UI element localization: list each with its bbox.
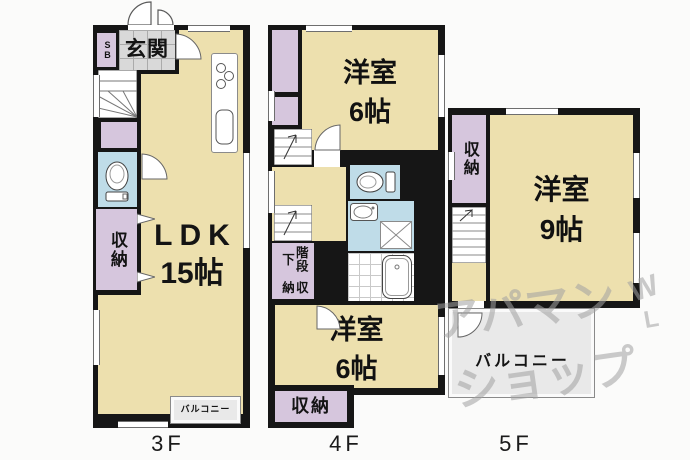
window-icon <box>448 152 455 180</box>
room-name: 洋室 <box>343 51 397 90</box>
ldk-size-label: 15帖 <box>141 255 243 291</box>
stairs-down-icon <box>274 205 312 241</box>
genkan-label: 玄関 <box>119 30 175 70</box>
stairs-icon <box>98 70 137 118</box>
stairs-up-icon <box>274 129 312 165</box>
door-arc-icon <box>316 305 341 330</box>
window-icon <box>438 317 445 375</box>
toilet-room-3f <box>98 152 137 207</box>
window-icon <box>633 153 640 198</box>
door-arc-icon <box>175 33 202 60</box>
balcony-label-5f: バルコニー <box>459 347 586 377</box>
window-icon <box>118 421 168 428</box>
window-icon <box>438 55 445 117</box>
window-icon <box>633 233 640 283</box>
stairs-landing-closet <box>101 122 137 148</box>
floorplan-canvas: SB 玄関 <box>0 0 690 460</box>
floor-label-5f: 5F <box>486 431 546 457</box>
storage-label-4f: 収納 <box>275 391 347 422</box>
shoe-box-label: SB <box>97 34 116 66</box>
window-icon <box>268 91 275 121</box>
toilet-room-4f <box>350 165 400 199</box>
door-arc-icon <box>314 124 341 151</box>
under-stairs-storage-label: 階段下 収納 <box>272 243 314 299</box>
storage-label-5f: 収納 <box>452 115 486 203</box>
storage-label-3f: 収納 <box>96 209 137 290</box>
ldk-name-label: LDK <box>141 217 243 253</box>
window-icon <box>188 25 230 32</box>
floorplan-3f: SB 玄関 <box>93 25 250 428</box>
door-opening <box>458 301 484 308</box>
storage-annex-4f: 収納 <box>268 385 354 428</box>
western-room-4f-bottom-label: 洋室 6帖 <box>275 305 438 388</box>
stove-icon <box>217 64 234 89</box>
door-opening <box>314 150 340 167</box>
door-arc-icon <box>141 153 168 180</box>
closet-4f-upper <box>272 30 298 92</box>
floorplan-4f: 洋室 6帖 <box>268 25 445 395</box>
washing-machine-icon <box>380 221 412 249</box>
room-name: 洋室 <box>533 168 589 208</box>
door-arc-icon <box>457 312 483 338</box>
sink-icon <box>216 110 233 144</box>
washroom-4f <box>348 201 414 251</box>
room-size: 9帖 <box>540 208 584 248</box>
balcony-5f: バルコニー <box>448 308 595 398</box>
window-icon <box>268 171 275 213</box>
entrance-double-door-icon <box>126 0 175 26</box>
window-icon <box>93 310 100 365</box>
western-room-5f-label: 洋室 9帖 <box>490 148 633 268</box>
bathroom-4f <box>348 253 414 301</box>
room-size: 6帖 <box>349 90 391 129</box>
toilet-icon <box>350 165 400 199</box>
washbasin-icon <box>350 203 378 221</box>
balcony-label-3f: バルコニー <box>170 396 241 424</box>
window-icon <box>93 75 100 117</box>
closet-4f-lower <box>272 97 298 125</box>
under-stairs-line2: 収納 <box>279 277 307 299</box>
window-icon <box>306 25 352 32</box>
watermark-mark-bottom: L <box>642 305 661 335</box>
floor-label-3f: 3F <box>138 431 198 457</box>
under-stairs-line1: 階段下 <box>279 243 307 277</box>
kitchen-counter <box>211 53 238 153</box>
bathtub-icon <box>382 255 412 299</box>
toilet-icon <box>98 152 137 207</box>
window-icon <box>506 108 558 115</box>
room-size: 6帖 <box>335 347 377 386</box>
hall-5f <box>452 263 486 301</box>
floor-label-4f: 4F <box>316 431 376 457</box>
floorplan-5f: 収納 洋室 9帖 <box>448 108 640 308</box>
stairs-icon-5f <box>452 207 486 263</box>
window-icon <box>243 153 250 248</box>
